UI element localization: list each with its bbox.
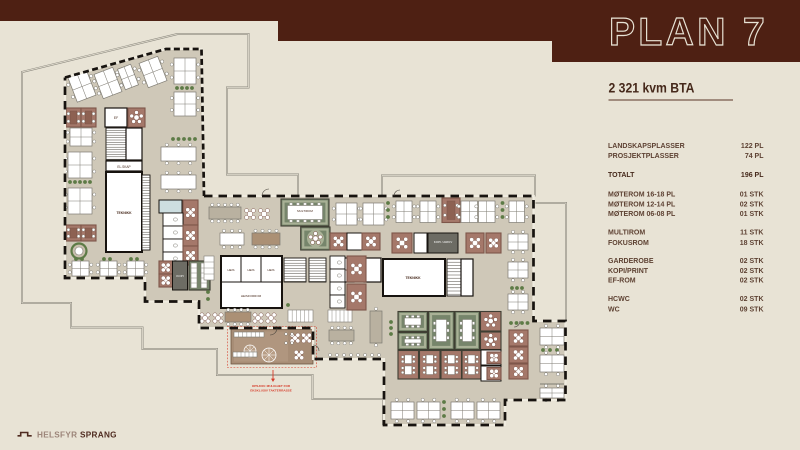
svg-text:TOTALT: TOTALT xyxy=(608,172,635,179)
svg-text:MULTIROM: MULTIROM xyxy=(297,209,313,213)
svg-text:02 STK: 02 STK xyxy=(740,202,764,209)
svg-text:MULTIROM: MULTIROM xyxy=(608,230,645,237)
svg-text:PROSJEKTPLASSER: PROSJEKTPLASSER xyxy=(608,153,679,160)
svg-text:FOKUSROM: FOKUSROM xyxy=(608,240,649,247)
svg-text:KOPI: KOPI xyxy=(176,274,183,278)
svg-text:MØTEROM 16-18 PL: MØTEROM 16-18 PL xyxy=(608,191,676,198)
svg-text:TEKNIKK: TEKNIKK xyxy=(405,276,421,280)
svg-text:EKSKLUSIV TAKTERRASSE: EKSKLUSIV TAKTERRASSE xyxy=(250,389,292,393)
svg-text:HCWC: HCWC xyxy=(608,296,630,303)
svg-text:18 STK: 18 STK xyxy=(740,240,764,247)
svg-text:01 STK: 01 STK xyxy=(740,191,764,198)
svg-text:09 STK: 09 STK xyxy=(740,306,764,313)
svg-text:PLAN 7: PLAN 7 xyxy=(609,11,768,54)
svg-text:2 321 kvm BTA: 2 321 kvm BTA xyxy=(609,79,695,95)
svg-text:122 PL: 122 PL xyxy=(741,143,764,150)
svg-text:HEISFORROM: HEISFORROM xyxy=(241,294,262,298)
svg-text:02 STK: 02 STK xyxy=(740,278,764,285)
svg-text:MØTEROM 12-14 PL: MØTEROM 12-14 PL xyxy=(608,202,676,209)
svg-text:01 STK: 01 STK xyxy=(740,211,764,218)
svg-text:MØTEROM 06-08 PL: MØTEROM 06-08 PL xyxy=(608,211,676,218)
svg-text:EF-ROM: EF-ROM xyxy=(608,278,636,285)
svg-text:GARDEROBE: GARDEROBE xyxy=(608,258,654,265)
svg-text:KOPI / ARKIV: KOPI / ARKIV xyxy=(434,240,453,244)
svg-text:LANDSKAPSPLASSER: LANDSKAPSPLASSER xyxy=(608,143,685,150)
svg-text:11 STK: 11 STK xyxy=(740,230,763,237)
svg-text:HEIS: HEIS xyxy=(267,268,274,272)
svg-text:WC: WC xyxy=(608,306,620,313)
svg-text:KOPI/PRINT: KOPI/PRINT xyxy=(608,268,649,275)
svg-text:02 STK: 02 STK xyxy=(740,268,764,275)
svg-text:OPSJON: MULIGHET FOR: OPSJON: MULIGHET FOR xyxy=(252,384,291,388)
svg-text:EL.SKAP: EL.SKAP xyxy=(117,165,130,169)
svg-text:EF: EF xyxy=(114,116,118,120)
svg-text:HEIS: HEIS xyxy=(247,268,254,272)
svg-text:196 PL: 196 PL xyxy=(741,172,764,179)
svg-text:HELSFYR: HELSFYR xyxy=(37,430,77,439)
svg-text:74 PL: 74 PL xyxy=(745,153,764,160)
svg-text:HEIS: HEIS xyxy=(227,268,234,272)
svg-text:02 STK: 02 STK xyxy=(740,258,764,265)
svg-text:02 STK: 02 STK xyxy=(740,296,764,303)
svg-text:TEKNIKK: TEKNIKK xyxy=(116,211,132,215)
svg-text:SPRANG: SPRANG xyxy=(80,430,117,439)
